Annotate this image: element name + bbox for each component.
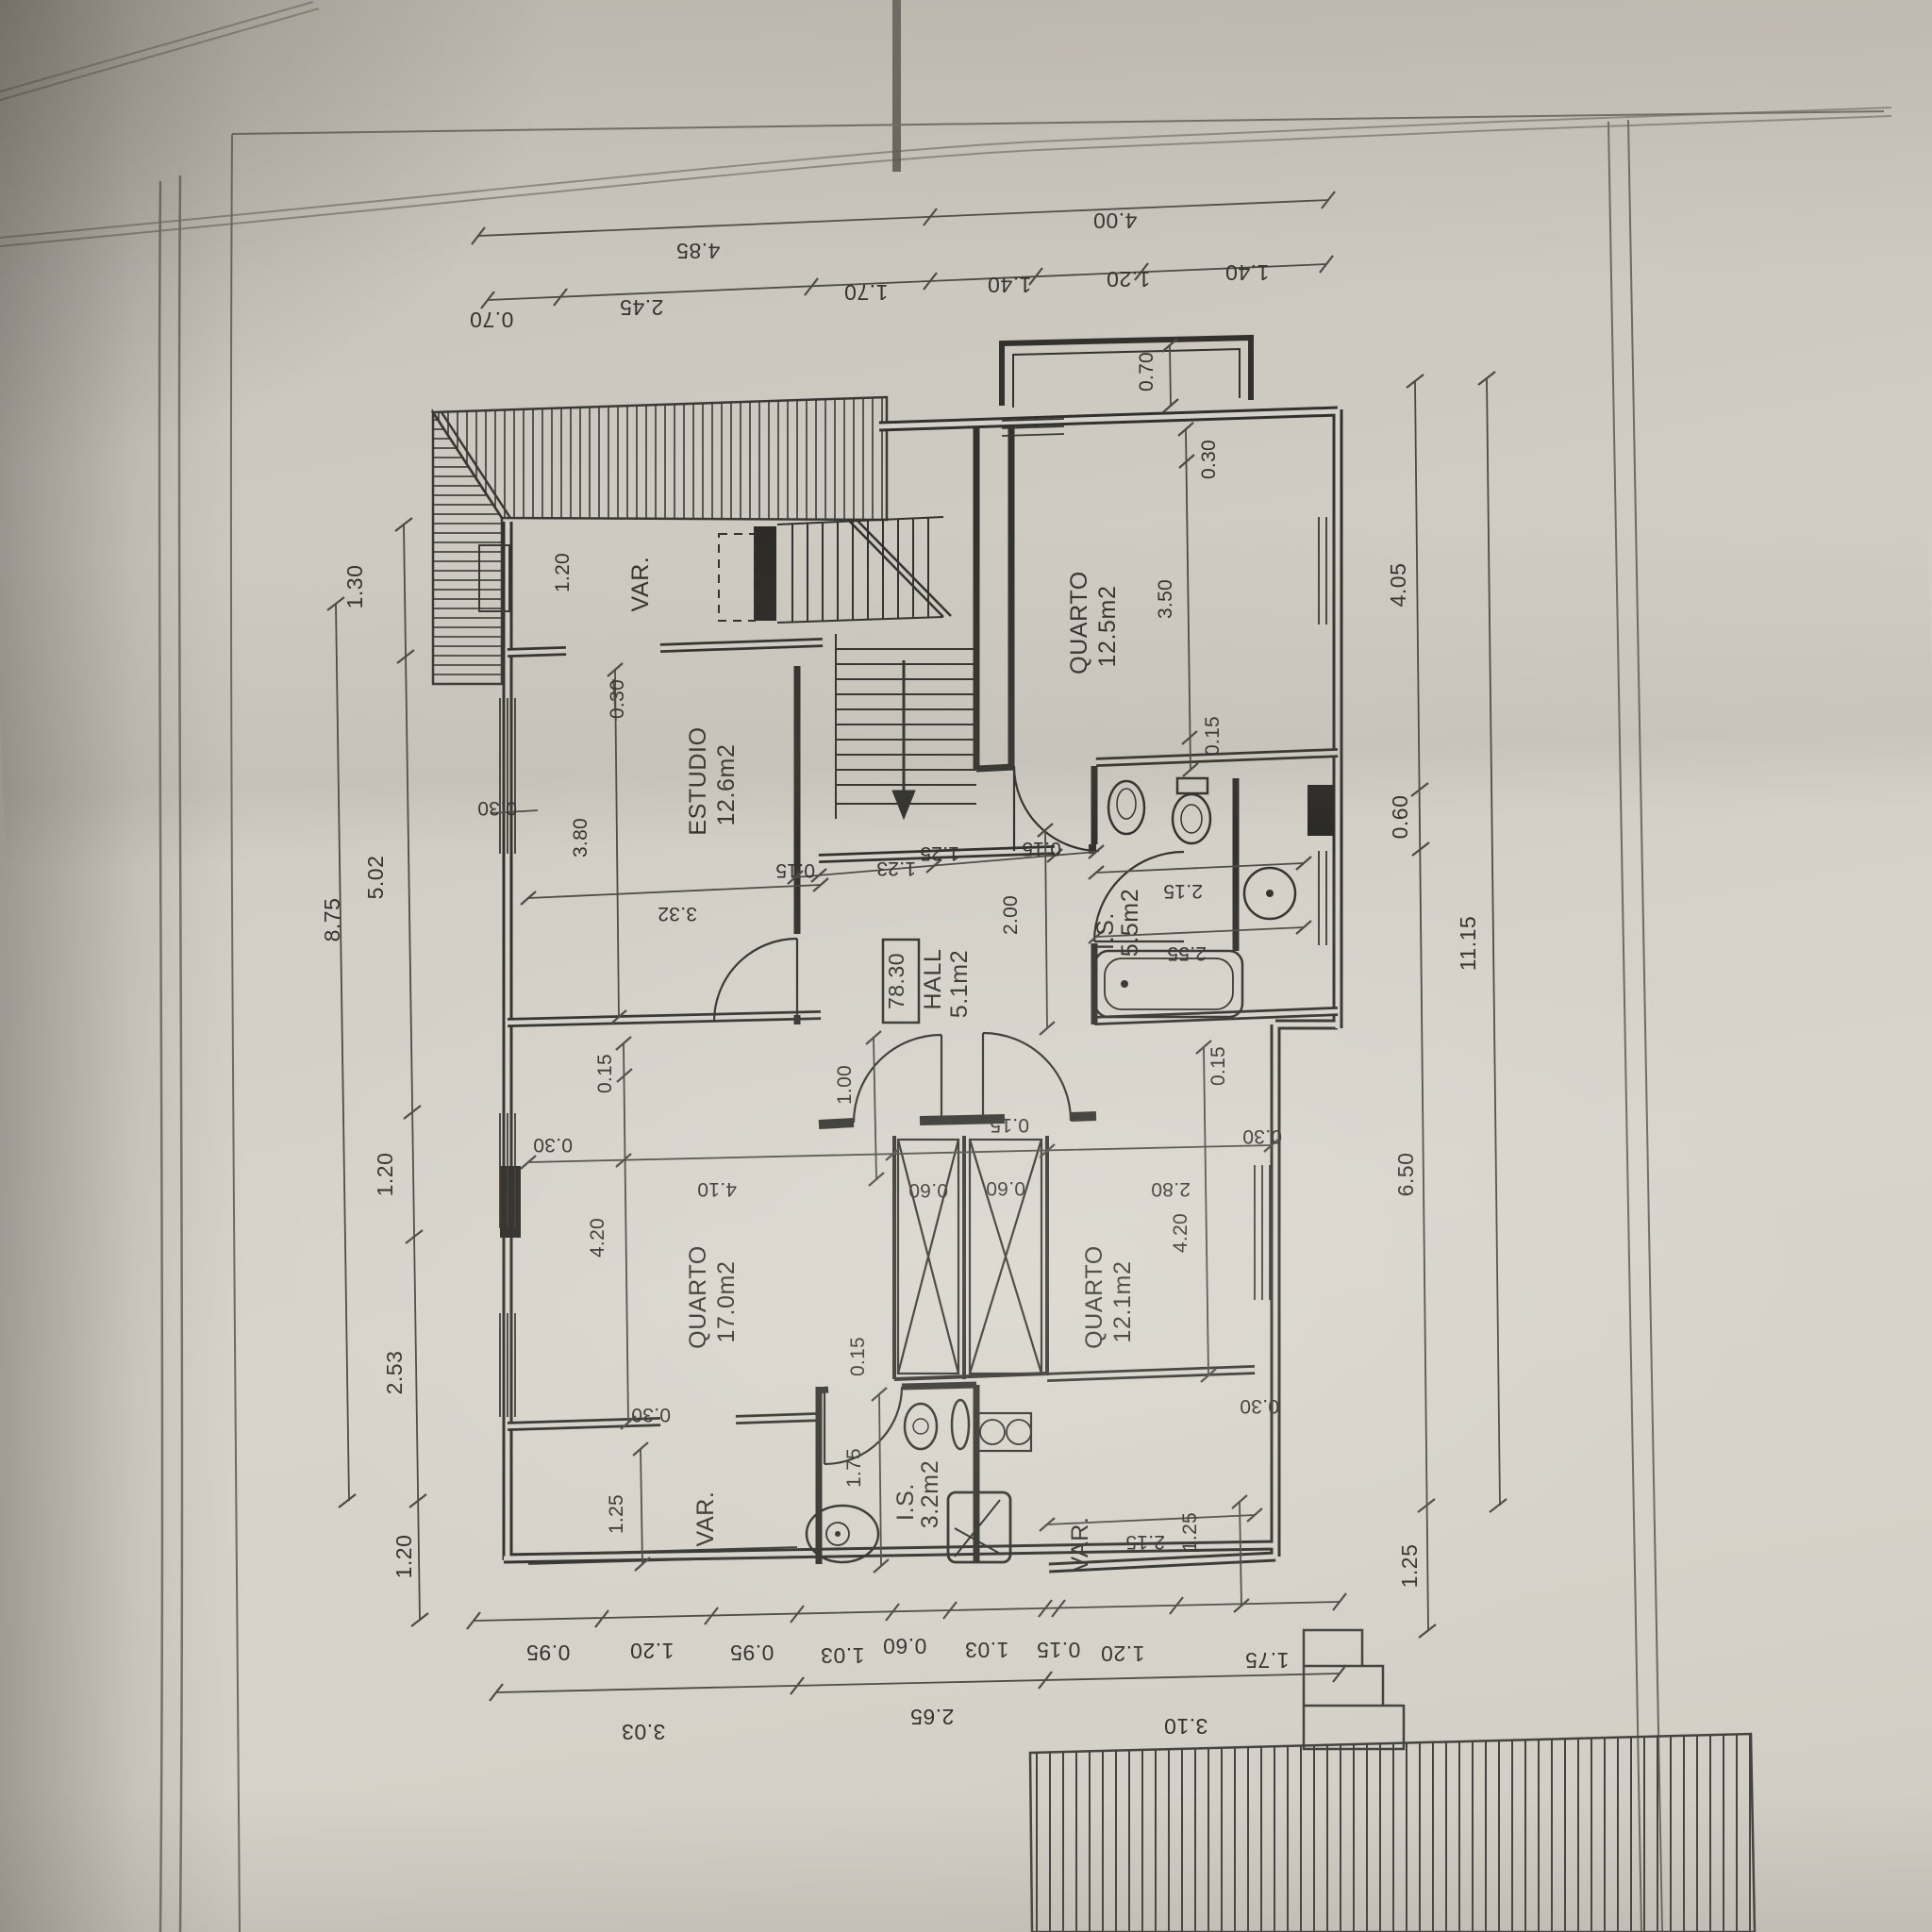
dim-label: 2.45 <box>620 295 664 320</box>
photographed-floor-plan-sheet: 4.85 4.00 0.70 2.45 1.70 1.40 1.20 1.40 … <box>0 0 1932 1932</box>
dim-label: 3.32 <box>658 903 697 924</box>
dim-label: 0.15 <box>990 1114 1029 1136</box>
room-name: VAR. <box>692 1491 719 1547</box>
dim-label: 8.75 <box>320 898 344 942</box>
room-area: 3.2m2 <box>917 1460 943 1528</box>
dim-label: 1.75 <box>843 1448 865 1488</box>
dim-label: 1.25 <box>1397 1544 1422 1589</box>
dim-label: 0.30 <box>477 797 517 819</box>
ventilation-shaft <box>976 1413 1031 1451</box>
room-name: ESTUDIO <box>685 726 711 835</box>
dim-label: 0.30 <box>631 1404 671 1425</box>
dim-label: 3.50 <box>1155 579 1176 619</box>
room-name: QUARTO <box>685 1245 711 1349</box>
dim-label: 0.15 <box>1022 838 1061 859</box>
dim-label: 2.80 <box>1151 1178 1191 1200</box>
dim-label: 1.03 <box>965 1638 1009 1662</box>
dim-label: 0.70 <box>1136 352 1158 391</box>
dim-label: 1.25 <box>606 1494 627 1534</box>
room-area: 5.1m2 <box>946 950 973 1018</box>
dim-label: 1.03 <box>821 1643 865 1668</box>
balcony-top-right <box>1002 338 1251 408</box>
dim-label: 0.15 <box>775 859 815 881</box>
dim-label: 1.23 <box>876 858 916 879</box>
dim-label: 0.15 <box>1037 1638 1081 1662</box>
dim-label: 0.60 <box>986 1177 1025 1199</box>
room-area: 17.0m2 <box>713 1261 740 1343</box>
room-area: 12.1m2 <box>1109 1261 1136 1343</box>
room-name: QUARTO <box>1081 1245 1108 1349</box>
dim-label: 0.30 <box>533 1134 573 1156</box>
dim-label: 2.15 <box>1163 880 1203 902</box>
fold-crease-mark <box>892 0 901 172</box>
dim-label: 4.00 <box>1093 208 1138 233</box>
dim-label: 6.50 <box>1393 1153 1418 1197</box>
dim-label: 0.30 <box>1198 440 1220 479</box>
toilet-cistern-icon <box>1177 778 1207 793</box>
dim-label: 1.40 <box>1225 260 1270 285</box>
room-name: I.S. <box>1092 912 1119 950</box>
dim-label: 0.30 <box>1242 1125 1282 1147</box>
level-marker: 78.30 <box>884 953 908 1009</box>
door-estudio <box>714 939 797 1022</box>
dim-label: 2.53 <box>382 1351 407 1395</box>
room-name: QUARTO <box>1066 571 1092 675</box>
dim-label: 0.95 <box>526 1641 571 1665</box>
dim-label: 3.80 <box>570 818 591 858</box>
door-quarto170 <box>854 1035 941 1123</box>
dim-label: 0.70 <box>470 308 514 332</box>
room-area: 5.5m2 <box>1117 889 1143 957</box>
room-name: I.S. <box>892 1483 919 1521</box>
roof-overhang-dashed <box>719 534 755 621</box>
dim-label: 0.60 <box>883 1634 927 1658</box>
room-name: VAR. <box>1067 1517 1093 1573</box>
toilet-icon <box>1173 794 1210 843</box>
bidet-icon <box>905 1404 937 1449</box>
dim-label: 3.03 <box>622 1720 666 1744</box>
dim-label: 0.30 <box>607 679 628 719</box>
dim-label: 0.95 <box>730 1641 774 1665</box>
exterior-steps <box>1304 1630 1404 1749</box>
dim-label: 2.55 <box>1167 942 1207 964</box>
paper-left-edge <box>159 175 182 1932</box>
dim-label: 4.20 <box>587 1218 608 1257</box>
dim-label: 11.15 <box>1456 916 1480 971</box>
exterior-deck-hatch <box>1030 1630 1755 1932</box>
dim-label: 2.15 <box>1125 1531 1165 1553</box>
dim-label: 1.75 <box>1245 1648 1290 1673</box>
dim-label: 0.60 <box>908 1179 948 1201</box>
dim-label: 1.25 <box>1179 1512 1201 1552</box>
dim-label: 1.30 <box>342 565 367 609</box>
dim-label: 0.15 <box>847 1337 869 1376</box>
dim-label: 4.20 <box>1170 1213 1191 1253</box>
door-quarto121 <box>983 1033 1071 1121</box>
floor-plan-drawing: 4.85 4.00 0.70 2.45 1.70 1.40 1.20 1.40 … <box>0 0 1932 1932</box>
chimney-block <box>754 526 776 621</box>
dim-label: 1.20 <box>630 1639 675 1663</box>
dim-label: 1.20 <box>552 553 574 592</box>
dim-label: 1.20 <box>391 1535 416 1579</box>
dim-label: 1.00 <box>834 1065 856 1105</box>
dim-label: 1.70 <box>844 280 889 305</box>
dim-label: 0.30 <box>1240 1395 1279 1417</box>
dim-label: 5.02 <box>363 856 388 900</box>
dim-label: 2.00 <box>1000 895 1022 935</box>
room-name: HALL <box>920 949 946 1010</box>
dim-label: 0.60 <box>1388 795 1412 840</box>
dim-label: 4.10 <box>697 1178 737 1200</box>
dim-label: 0.15 <box>1207 1046 1229 1086</box>
room-area: 12.5m2 <box>1094 586 1121 668</box>
dim-label: 0.15 <box>594 1054 616 1093</box>
room-name: VAR. <box>627 557 654 612</box>
dim-label: 1.40 <box>988 273 1032 297</box>
dim-label: 1.20 <box>1101 1641 1145 1666</box>
dim-label: 4.85 <box>676 239 721 263</box>
dim-label: 1.25 <box>920 842 959 864</box>
room-area: 12.6m2 <box>713 744 740 826</box>
dim-label: 1.20 <box>1107 267 1151 291</box>
wardrobes <box>898 1140 1041 1374</box>
cistern-icon <box>952 1400 969 1449</box>
dim-label: 1.20 <box>373 1153 397 1197</box>
dim-label: 0.15 <box>1202 716 1224 756</box>
dim-label: 4.05 <box>1386 563 1410 608</box>
dim-label: 3.10 <box>1164 1714 1208 1739</box>
dim-label: 2.65 <box>910 1705 955 1729</box>
